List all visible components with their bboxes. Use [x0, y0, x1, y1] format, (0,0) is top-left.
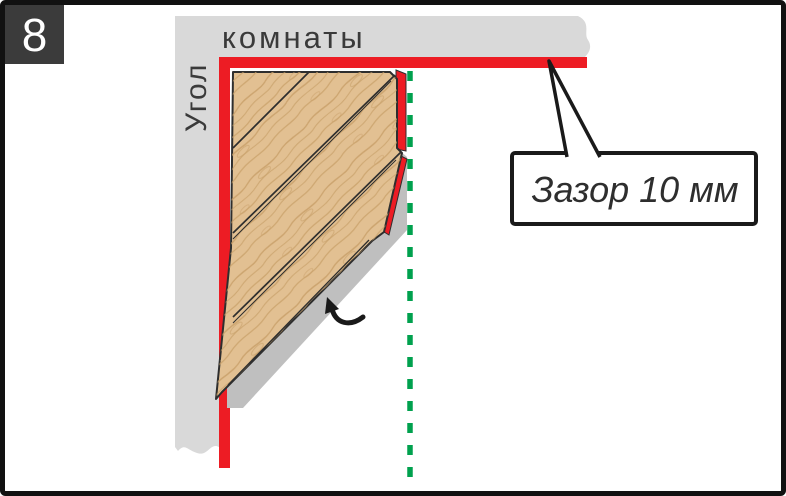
- panel-wood-texture: [216, 72, 402, 399]
- gap-line-horizontal: [219, 57, 587, 68]
- laminate-panel: [216, 72, 402, 399]
- step-badge-number: 8: [22, 9, 48, 61]
- curved-arrow-up-left-icon: [325, 297, 363, 323]
- wall-label-vertical: Угол: [180, 62, 213, 132]
- callout-label: Зазор 10 мм: [531, 169, 738, 210]
- wall-label-horizontal: комнаты: [222, 20, 366, 55]
- step-badge: 8: [5, 5, 64, 64]
- figure-frame: Зазор 10 мм комнаты Угол 8: [0, 0, 786, 496]
- diagram-canvas: Зазор 10 мм комнаты Угол 8: [0, 0, 786, 496]
- gap-callout: Зазор 10 мм: [512, 61, 756, 224]
